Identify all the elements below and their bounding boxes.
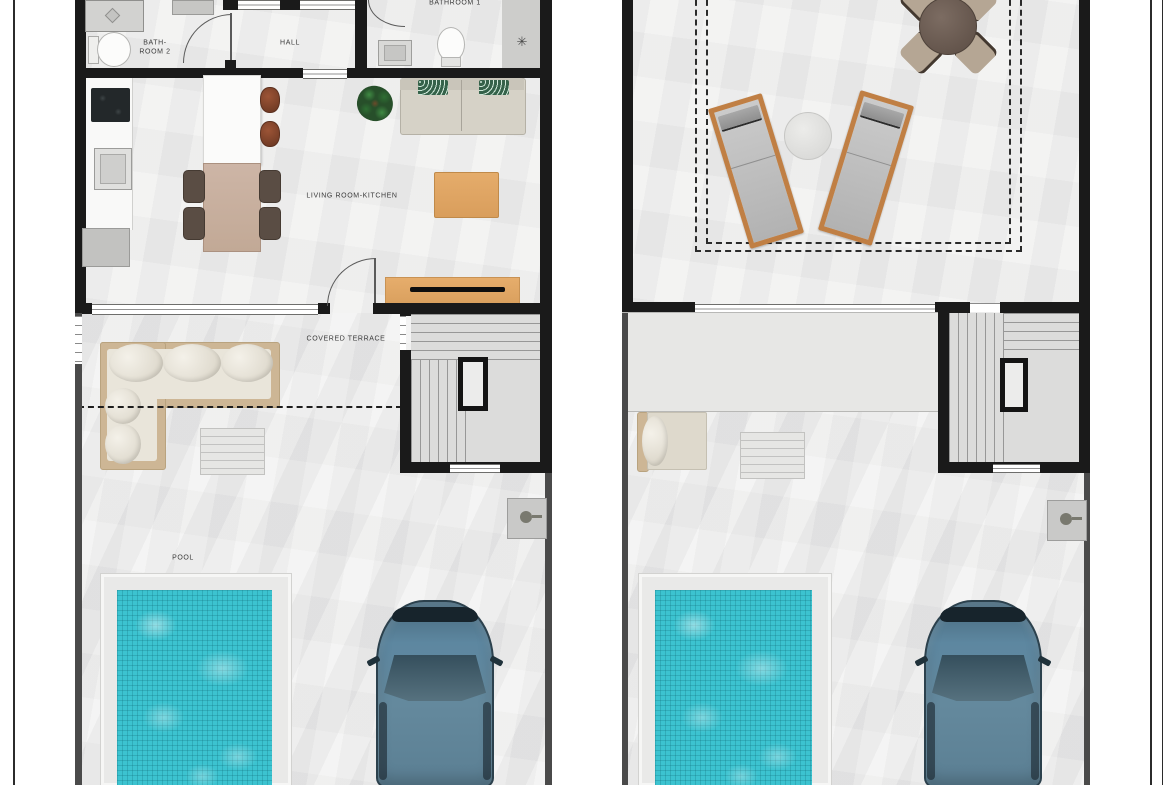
terrace-side-table [200, 428, 265, 475]
car-windshield [384, 655, 486, 701]
parked-car [372, 600, 498, 785]
lower-roof-slab [622, 312, 939, 412]
wall-right [1079, 0, 1090, 473]
roof-terrace-plan [622, 0, 1090, 785]
pool-label: POOL [172, 555, 194, 564]
page-frame-right-outer [1162, 0, 1163, 785]
wall-mid-horizontal-a [75, 68, 303, 78]
shower-stem [1072, 517, 1082, 520]
door-leaf-bathroom2 [230, 13, 232, 62]
sink-basin-bathroom1 [384, 45, 406, 61]
hall-top-window [238, 0, 280, 10]
sofa-pillow-green [479, 80, 509, 95]
car-rear-window [392, 607, 478, 622]
bathroom1-label: BATHROOM 1 [429, 0, 481, 8]
page-frame-right [1150, 0, 1152, 785]
coffee-table [434, 172, 499, 218]
outdoor-shower-unit [1047, 500, 1087, 541]
stair-treads-left [949, 313, 1004, 462]
wall-mid-horizontal-b [347, 68, 552, 78]
shower-head-icon [1060, 513, 1072, 525]
toilet-bowl-bath2 [97, 32, 131, 67]
lounger-pillow [717, 105, 762, 133]
hall-top-window-2 [300, 0, 355, 10]
outdoor-sofa-cushion [105, 424, 141, 464]
stair-door-gap [400, 316, 406, 350]
parked-car [920, 600, 1046, 785]
stair-void [458, 357, 488, 411]
sofa-pillow-green [418, 80, 448, 95]
dining-table [203, 163, 261, 252]
floor-plan-sheet: BATH- ROOM 2 HALL BATHROOM 1 ✳ [0, 0, 1170, 785]
ground-floor-plan: BATH- ROOM 2 HALL BATHROOM 1 ✳ [75, 0, 552, 785]
stair-treads-upper [1004, 313, 1079, 358]
outdoor-sofa-cushion [642, 416, 668, 466]
hall-label: HALL [280, 40, 300, 49]
door-hinge-bathroom2 [225, 60, 236, 71]
stair-wall-top [1000, 302, 1079, 313]
kitchen-island [203, 75, 261, 165]
stair-treads-upper [411, 314, 540, 360]
cooktop [91, 88, 130, 122]
outdoor-sofa-cushion [221, 344, 273, 382]
stair-void [1000, 358, 1028, 412]
shower-stem [532, 515, 542, 518]
stair-wall-left-b [400, 350, 411, 473]
car-rear-window [940, 607, 1026, 622]
pool-water [117, 590, 272, 785]
lounger-pillow [860, 102, 905, 130]
bathroom2-label: BATH- ROOM 2 [139, 39, 170, 57]
lounger-side-table [784, 112, 832, 160]
washer [172, 0, 214, 15]
car-side-window [1031, 702, 1039, 780]
dining-chair [183, 170, 205, 203]
pool-deck [100, 573, 292, 785]
door-leaf-terrace [374, 258, 376, 305]
car-side-window [483, 702, 491, 780]
dining-chair [183, 207, 205, 240]
car-windshield [932, 655, 1034, 701]
stair-wall-left-a [400, 308, 411, 316]
stair-window [993, 464, 1040, 473]
car-side-window [927, 702, 935, 780]
outdoor-sofa-cushion [163, 344, 221, 382]
sofa-divider [461, 80, 462, 131]
kitchen-appliance [82, 228, 130, 267]
lounger-fold [731, 155, 775, 169]
stair-wall-left [938, 302, 949, 473]
plot-gate [75, 316, 82, 364]
toilet-base-bathroom1 [441, 57, 461, 67]
lounger-fold [847, 152, 891, 166]
dining-chair [259, 170, 281, 203]
outdoor-sofa-cushion [109, 344, 163, 382]
stair-wall-right [540, 313, 552, 473]
terrace-boundary-dashed [78, 406, 402, 408]
wall-top-stub-2 [280, 0, 300, 10]
wall-left [622, 0, 633, 313]
bar-stool [260, 87, 280, 113]
stair-window [450, 464, 500, 473]
outdoor-shower-icon: ✳ [517, 34, 528, 50]
sliding-door [92, 304, 318, 315]
tv-screen [410, 287, 505, 292]
plot-boundary-left [75, 313, 82, 785]
hall-threshold [303, 69, 347, 79]
pool-deck [638, 573, 832, 785]
wall-right [540, 0, 552, 313]
page-frame-left [13, 0, 15, 785]
kitchen-sink-basin [100, 154, 126, 184]
covered-terrace-label: COVERED TERRACE [307, 336, 386, 345]
bathroom2-label-line2: ROOM 2 [139, 48, 170, 55]
bathroom2-label-line1: BATH- [143, 39, 166, 46]
shower-head-icon [520, 511, 532, 523]
stair-entry-gap [970, 303, 1000, 312]
living-kitchen-label: LIVING ROOM-KITCHEN [306, 193, 397, 202]
car-side-window [379, 702, 387, 780]
outdoor-shower-unit [507, 498, 547, 539]
plot-boundary-left [622, 313, 628, 785]
wall-top-stub-1 [223, 0, 238, 10]
pool-water [655, 590, 812, 785]
bar-stool [260, 121, 280, 147]
terrace-side-table [740, 432, 805, 479]
wall-hall-bathroom1 [355, 0, 367, 68]
dining-chair [259, 207, 281, 240]
